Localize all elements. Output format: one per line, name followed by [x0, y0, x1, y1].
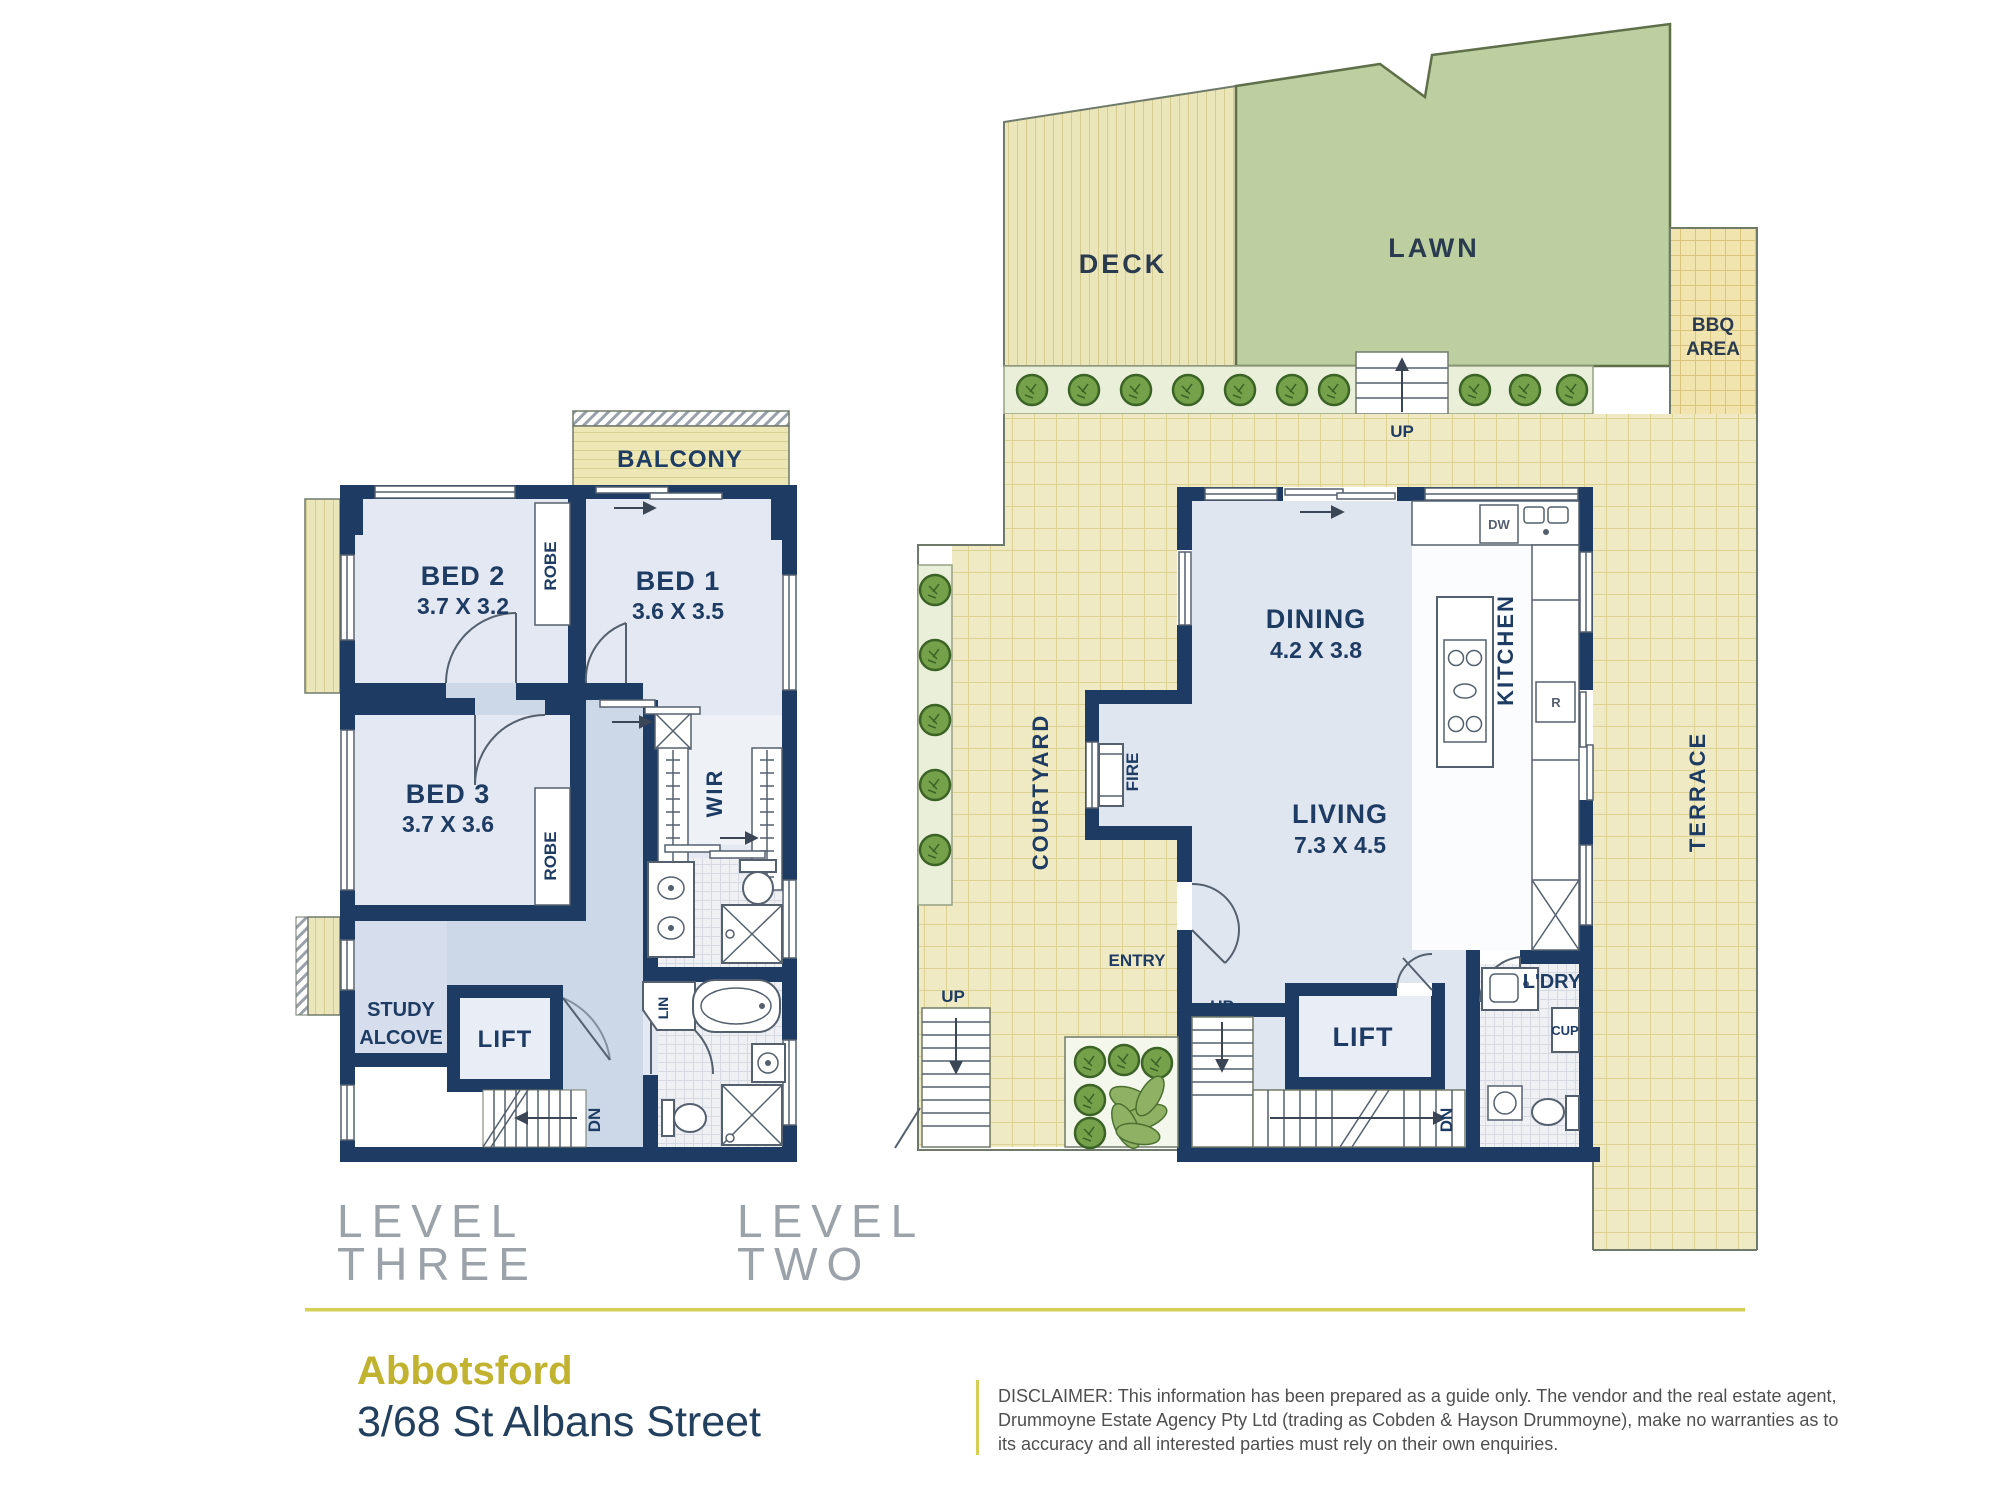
balcony-sliding-door [596, 487, 668, 493]
bbq-label-line1: BBQ [1692, 315, 1734, 336]
juliet-rail [296, 917, 308, 1015]
divider-line [305, 1308, 1745, 1312]
dn-label-level-two: DN [1437, 1108, 1456, 1133]
study-alcove-label-line2: ALCOVE [359, 1027, 442, 1049]
ensuite-toilet [740, 860, 776, 872]
level-three-plan: BALCONY BED 2 3.7 X 3.2 ROBE BED 1 3.6 X… [296, 411, 797, 1162]
dining-dims: 4.2 X 3.8 [1270, 637, 1362, 663]
bed3-label: BED 3 [406, 779, 491, 809]
courtyard-tiles-upper [1004, 487, 1177, 545]
garden-stairs-up [1356, 352, 1448, 414]
wir-label: WIR [702, 769, 727, 818]
sink-icon [1524, 507, 1544, 523]
level-three-title-line2: THREE [337, 1238, 538, 1290]
level-two-title-line2: TWO [737, 1238, 871, 1290]
suburb-title: Abbotsford [357, 1349, 573, 1393]
living-label: LIVING [1292, 799, 1388, 829]
fridge-label: R [1551, 695, 1561, 710]
bed3-robe-label: ROBE [541, 831, 560, 880]
bed1-dims: 3.6 X 3.5 [632, 598, 724, 624]
kitchen-label: KITCHEN [1493, 594, 1518, 706]
juliet-floor [308, 917, 340, 1015]
lift-label-level-three: LIFT [478, 1026, 533, 1053]
disclaimer-line2: Drummoyne Estate Agency Pty Ltd (trading… [998, 1410, 1838, 1430]
up-label-mid: UP [1210, 997, 1234, 1016]
linen-label: LIN [655, 997, 671, 1020]
lawn-area [1236, 24, 1670, 366]
street-address: 3/68 St Albans Street [357, 1398, 761, 1446]
balcony-rail [573, 411, 789, 426]
courtyard-label: COURTYARD [1028, 714, 1053, 871]
up-label-left: UP [941, 987, 965, 1006]
bbq-label-line2: AREA [1686, 339, 1740, 360]
planter-box [1065, 1037, 1178, 1152]
fire-label: FIRE [1123, 753, 1142, 792]
bed2-label: BED 2 [421, 561, 506, 591]
cupboard-label: CUP [1551, 1023, 1579, 1038]
entry-label: ENTRY [1109, 951, 1167, 970]
lawn-label: LAWN [1388, 233, 1479, 263]
disclaimer-line3: its accuracy and all interested parties … [998, 1434, 1558, 1454]
dining-label: DINING [1266, 604, 1367, 634]
footer-separator [976, 1380, 979, 1455]
deck-area [1004, 86, 1236, 366]
terrace-tiles-right [1593, 487, 1757, 1250]
lift-label-level-two: LIFT [1333, 1022, 1394, 1052]
terrace-tiles-top [1004, 414, 1757, 487]
up-label-garden: UP [1390, 422, 1414, 441]
deck-label: DECK [1079, 249, 1168, 279]
study-alcove-label-line1: STUDY [367, 999, 435, 1021]
level-two-plan: DECK LAWN BBQ AREA UP COURTYARD TERRACE … [895, 24, 1757, 1250]
stairs-down-level-three [483, 1090, 586, 1147]
bed3-dims: 3.7 X 3.6 [402, 811, 494, 837]
laundry-label: L'DRY [1523, 971, 1582, 993]
living-dims: 7.3 X 4.5 [1294, 832, 1386, 858]
bed1-label: BED 1 [636, 566, 721, 596]
stairs-down-level-two [1253, 1090, 1465, 1147]
disclaimer-line1: DISCLAIMER: This information has been pr… [998, 1386, 1837, 1406]
terrace-label: TERRACE [1685, 732, 1710, 852]
laundry-toilet [1532, 1099, 1564, 1125]
floorplan-page: DECK LAWN BBQ AREA UP COURTYARD TERRACE … [0, 0, 2000, 1500]
dishwasher-label: DW [1488, 517, 1510, 532]
balcony-label: BALCONY [617, 446, 743, 473]
stairs-up-mid [1192, 1017, 1253, 1147]
bed2-dims: 3.7 X 3.2 [417, 593, 509, 619]
planter-west [305, 499, 340, 693]
dn-label-level-three: DN [585, 1108, 604, 1133]
floorplan-drawing: DECK LAWN BBQ AREA UP COURTYARD TERRACE … [0, 0, 2000, 1500]
bed2-robe-label: ROBE [541, 541, 560, 590]
bath-toilet [662, 1100, 674, 1136]
